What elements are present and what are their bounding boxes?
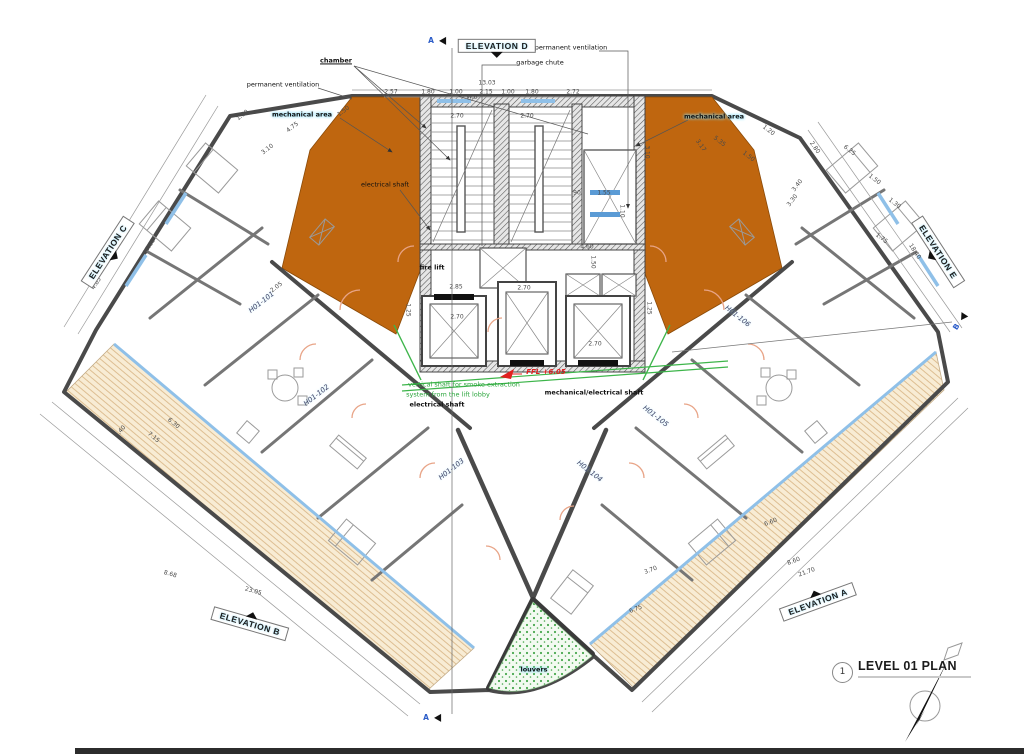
dimension-label: 17.68 (143, 238, 158, 256)
dimension-label: 2.80 (807, 141, 820, 156)
annotation-mechanical-area: mechanical area (684, 113, 744, 120)
annotation-system-from-the-lift-lobby: system from the lift lobby (406, 391, 490, 398)
label-overlay: 13.032.571.801.00W.B2.151.001.802.722.70… (0, 0, 1024, 754)
section-marker-a: A (423, 714, 441, 722)
dimension-label: 1.25 (645, 301, 652, 314)
dimension-label: 1.20 (761, 124, 776, 137)
floor-plan-sheet: 13.032.571.801.00W.B2.151.001.802.722.70… (0, 0, 1024, 754)
dimension-label: 1.80 (525, 90, 538, 97)
annotation-mechanical-electrical-shaft: mechanical/electrical shaft (545, 389, 644, 396)
dimension-label: 3.30 (786, 194, 799, 209)
annotation-fire-lift: fire lift (419, 264, 444, 271)
dimension-label: 1.55 (597, 191, 610, 198)
elevation-label: ELEVATION C (87, 223, 129, 281)
elevation-marker-b: ELEVATION B (210, 606, 289, 641)
dimension-label: 1.60 (236, 109, 251, 122)
annotation-chamber: chamber (320, 57, 352, 64)
annotation-vertical-shaft-for-smoke-extraction: vertical shaft for smoke extraction (408, 381, 520, 388)
section-marker-b: B (952, 312, 969, 331)
dimension-label: 1.10 (618, 204, 625, 217)
dimension-label: 3.10 (643, 145, 650, 158)
dimension-label: 23.05 (244, 586, 262, 597)
room-label-h01-103: H01-103 (438, 458, 466, 483)
dimension-label: 2.70 (520, 114, 533, 121)
annotation-mechanical-area: mechanical area (272, 111, 332, 118)
room-label-h01-104: H01-104 (575, 460, 603, 485)
dimension-label: 3.70 (644, 566, 659, 577)
elevation-label: ELEVATION E (917, 223, 959, 280)
dimension-label: 1.50 (867, 173, 882, 186)
dimension-label: 2.70 (588, 342, 601, 349)
section-arrow-icon (430, 714, 441, 722)
elevation-marker-d: ELEVATION D (458, 39, 536, 53)
dimension-label: 13.03 (478, 81, 495, 88)
annotation-electrical-shaft: electrical shaft (361, 181, 409, 188)
dimension-label: 1.80 (421, 90, 434, 97)
dimension-label: 2.70 (450, 315, 463, 322)
dimension-label: 6.25 (842, 144, 857, 157)
dimension-label: 2.72 (566, 90, 579, 97)
dimension-label: 2.70 (450, 114, 463, 121)
dimension-label: 6.75 (629, 605, 644, 616)
section-marker-a: A (428, 37, 446, 45)
room-label-h01-105: H01-105 (641, 405, 669, 430)
dimension-label: 2.15 (479, 90, 492, 97)
dimension-label: 1.25 (404, 303, 411, 316)
dimension-label: 6.60 (764, 518, 779, 529)
section-arrow-icon (955, 312, 968, 326)
annotation-permanent-ventilation: permanent ventilation (247, 81, 319, 88)
dimension-label: 3.17 (693, 139, 706, 154)
annotation-louvers: louvers (520, 666, 547, 673)
dimension-label: 8.60 (787, 557, 802, 568)
dimension-label: 4.75 (286, 121, 301, 134)
dimension-label: 21.70 (798, 567, 816, 579)
dimension-label: 18.40 (907, 243, 922, 261)
dimension-label: 7.15 (146, 431, 160, 445)
annotation-ffl-6-05: FFL +6.05 (526, 369, 566, 377)
dimension-label: 1.50 (741, 150, 756, 163)
dimension-label: 1.75 (874, 232, 889, 245)
dimension-label: .90 (571, 191, 581, 198)
drawing-number-badge: 1 (832, 662, 853, 683)
dimension-label: 2.40 (114, 425, 128, 439)
dimension-label: 1.50 (337, 105, 352, 118)
room-label-h01-102: H01-102 (303, 384, 331, 409)
dimension-label: 1.00 (449, 90, 462, 97)
elevation-marker-a: ELEVATION A (779, 582, 857, 622)
annotation-garbage-chute: garbage chute (516, 59, 563, 66)
section-arrow-icon (435, 37, 446, 45)
drawing-title: LEVEL 01 PLAN (858, 659, 971, 678)
annotation-electrical-shaft: electrical shaft (410, 401, 465, 408)
dimension-label: 1.00 (501, 90, 514, 97)
elevation-label: ELEVATION D (466, 41, 528, 51)
dimension-label: 3.40 (791, 179, 804, 194)
dimension-label: 5.35 (712, 135, 727, 148)
dimension-label: 1.30 (887, 197, 902, 210)
dimension-label: 1.50 (589, 255, 596, 268)
room-label-h01-101: H01-101 (248, 291, 276, 316)
dimension-label: 8.68 (163, 570, 178, 580)
dimension-label: 6.30 (166, 417, 180, 431)
room-label-h01-106: H01-106 (723, 305, 751, 330)
dimension-label: 4.60 (580, 245, 593, 252)
dimension-label: W.B (466, 95, 477, 102)
dimension-label: 2.70 (517, 286, 530, 293)
dimension-label: 3.10 (261, 143, 276, 156)
dimension-label: 2.57 (384, 90, 397, 97)
dimension-label: 2.85 (449, 285, 462, 292)
annotation-permanent-ventilation: permanent ventilation (535, 44, 607, 51)
elevation-arrow-icon (491, 52, 503, 64)
elevation-marker-c: ELEVATION C (81, 215, 136, 289)
